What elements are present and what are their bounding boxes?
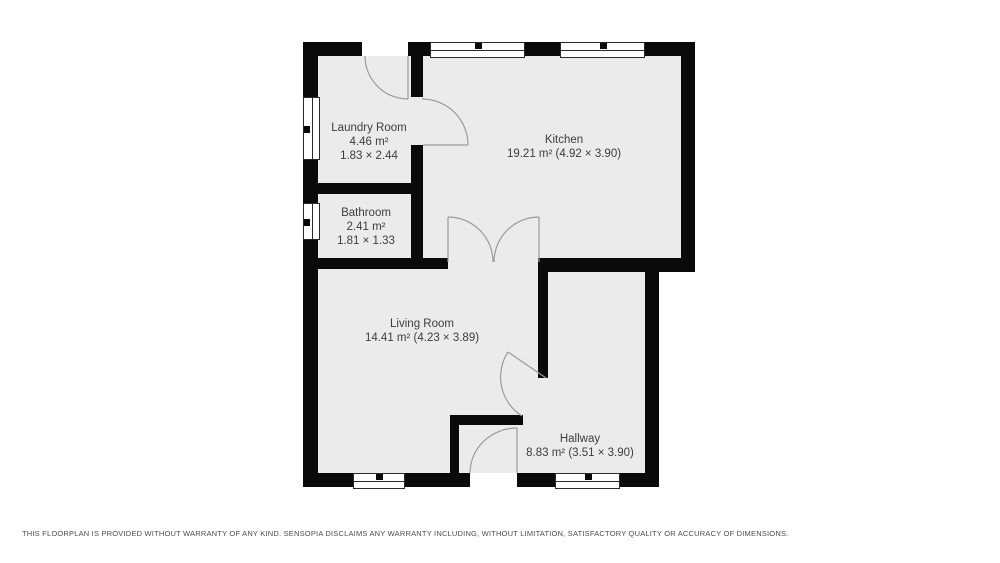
room-label-hallway: Hallway 8.83 m² (3.51 × 3.90) — [526, 432, 634, 460]
window-tick — [304, 126, 310, 133]
window-symbol-living — [353, 473, 405, 489]
room-area: 14.41 m² (4.23 × 3.89) — [365, 331, 479, 345]
room-area: 8.83 m² (3.51 × 3.90) — [526, 446, 634, 460]
window-tick — [475, 43, 482, 49]
laundry-exterior-door-opening — [362, 42, 408, 56]
wall-exterior-right-hallway — [645, 258, 659, 487]
window-tick — [585, 474, 592, 480]
window-glass-line — [312, 98, 313, 159]
room-name: Living Room — [365, 317, 479, 331]
window-tick — [376, 474, 383, 480]
wall-laundry-kitchen-upper — [411, 56, 423, 97]
room-area: 2.41 m² — [337, 220, 395, 234]
window-glass-line — [354, 481, 404, 482]
front-door-opening — [470, 473, 517, 487]
window-glass-line — [312, 204, 313, 239]
floorplan: Laundry Room 4.46 m² 1.83 × 2.44 Kitchen… — [0, 0, 1000, 563]
window-glass-line — [556, 481, 619, 482]
wall-kitchen-bottom — [538, 258, 695, 272]
window-symbol-kitchen-left — [430, 42, 525, 58]
room-label-bathroom: Bathroom 2.41 m² 1.81 × 1.33 — [337, 206, 395, 248]
room-area: 4.46 m² — [331, 135, 406, 149]
wall-exterior-right-kitchen — [681, 42, 695, 272]
wall-vestibule-vertical — [450, 415, 459, 473]
wall-living-top — [303, 258, 448, 269]
room-name: Hallway — [526, 432, 634, 446]
room-label-living: Living Room 14.41 m² (4.23 × 3.89) — [365, 317, 479, 345]
room-area: 19.21 m² (4.92 × 3.90) — [507, 147, 621, 161]
disclaimer-text: THIS FLOORPLAN IS PROVIDED WITHOUT WARRA… — [22, 529, 788, 538]
wall-vestibule-horizontal — [450, 415, 523, 425]
window-glass-line — [431, 50, 524, 51]
room-label-kitchen: Kitchen 19.21 m² (4.92 × 3.90) — [507, 133, 621, 161]
wall-laundry-kitchen-lower — [411, 145, 423, 269]
wall-laundry-bathroom — [303, 183, 423, 194]
room-name: Bathroom — [337, 206, 395, 220]
window-symbol-laundry — [303, 97, 320, 160]
room-dimensions: 1.81 × 1.33 — [337, 234, 395, 248]
window-tick — [600, 43, 607, 49]
window-symbol-kitchen-right — [560, 42, 645, 58]
window-tick — [304, 219, 310, 226]
room-dimensions: 1.83 × 2.44 — [331, 149, 406, 163]
window-glass-line — [561, 50, 644, 51]
window-symbol-bathroom — [303, 203, 320, 240]
room-name: Kitchen — [507, 133, 621, 147]
wall-living-right — [538, 258, 548, 378]
room-label-laundry: Laundry Room 4.46 m² 1.83 × 2.44 — [331, 121, 406, 163]
room-name: Laundry Room — [331, 121, 406, 135]
window-symbol-hallway — [555, 473, 620, 489]
